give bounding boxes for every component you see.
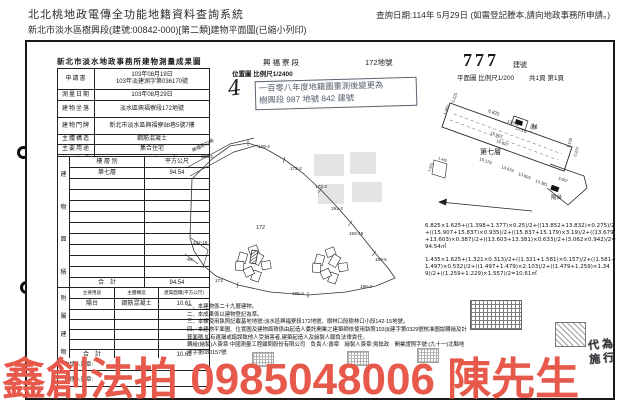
label: 0.377 [572, 145, 580, 157]
info-value-line: 鋼筋混凝土 [137, 136, 167, 143]
side-label-char: 附 [60, 293, 66, 302]
label: 13.679 [501, 164, 515, 173]
label: 第七層 [480, 147, 501, 156]
table-cell: 主體構造 [114, 288, 158, 298]
table-cell: 主要用途 [70, 288, 114, 298]
building-clusters [235, 245, 348, 284]
label: 173 [215, 278, 223, 283]
label: 13.381 [535, 178, 549, 187]
info-value: 新北市淡水區興福寮98巷5號7樓 [94, 118, 209, 134]
page: 北北桃地政電傳全功能地籍資料查詢系統 查詢日期:114年 5月29日 (如需登記… [0, 0, 640, 412]
table-cell [70, 212, 144, 222]
label: 15.179 [479, 156, 493, 165]
label: 173-3 [315, 184, 327, 189]
document-description: 新北市淡水區樹興段(建號:00842-000)[第二類]建物平面圖(已縮小列印) [28, 23, 307, 36]
info-row: 申請書103年08月19日103年淡建測字第036170號 [58, 69, 209, 89]
main-area-formula: 6.825×1.625+((1.398+1.377)×0.25)/2+((13.… [425, 223, 617, 252]
info-label: 主體構造 [58, 135, 94, 144]
location-map: 興福寮22巷186-4189-4173-2173-3191-3193-15142… [185, 137, 420, 307]
label: 梯 [532, 123, 538, 131]
survey-document: 新北市淡水地政事務所建物測量成果圖 興福寮段 172地號 777 建號 平面圖 … [25, 40, 615, 400]
label: 172 [256, 225, 265, 231]
building-footprint [312, 263, 321, 273]
table-cell: 第七層 [70, 168, 144, 178]
label: 142-16 [193, 240, 208, 245]
info-row: 建物門牌新北市淡水區興福寮98巷5號7樓 [58, 117, 209, 134]
label: 15.837 [496, 138, 510, 147]
table-cell [114, 310, 158, 319]
floor-area-side-label: 建物面積 [58, 157, 70, 288]
table-cell [114, 320, 158, 329]
info-value-line: 集合住宅 [140, 146, 164, 153]
table-cell: 陽台 [70, 299, 114, 309]
label: -94 [186, 257, 193, 262]
info-row: 測量日期103年08月29日 [58, 89, 209, 100]
label: 193-15 [349, 231, 364, 236]
table-cell: 樓 層 別 [70, 157, 144, 167]
label: 191-3 [331, 206, 343, 211]
info-value: 淡水區興福寮段172地號 [94, 101, 209, 117]
label: 189-4 [258, 144, 270, 149]
table-cell [70, 190, 144, 200]
building-footprint [235, 261, 244, 271]
label: 興福寮22巷 [191, 137, 215, 154]
balcony-detail [432, 160, 447, 178]
label: 13.603 [518, 171, 532, 180]
building-footprint [261, 260, 271, 269]
label: 173-2 [290, 166, 302, 171]
annex-area-formula: 1.435×1.625+(1.321×0.313)/2+((1.321+1.58… [425, 257, 617, 278]
plan-scale-label: 平面圖 比例尺1/200 [457, 72, 514, 82]
table-cell [70, 267, 144, 277]
side-label-char: 建 [60, 329, 66, 338]
location-map-label: 位置圖 比例尺1/2400 [232, 68, 293, 78]
land-number: 172地號 [365, 57, 393, 68]
table-cell: 鋼筋混凝土 [114, 299, 158, 309]
label: 185-4 [292, 291, 304, 296]
auction-watermark: 鑫創法拍 0985048006 陳先生 [2, 356, 640, 404]
label: 3.062 [558, 176, 568, 183]
label: 0.225 [450, 91, 458, 103]
note-line: 一、本建物係二十九層建物。 [187, 304, 467, 312]
faint-watermark-blocks [314, 152, 382, 204]
table-cell [70, 179, 144, 189]
system-title: 北北桃地政電傳全功能地籍資料查詢系統 [28, 6, 244, 22]
side-label-char: 屬 [60, 311, 66, 320]
side-label-char: 面 [60, 234, 66, 243]
label: 1.105 [565, 136, 573, 148]
table-cell [70, 223, 144, 233]
label: 陽台 [551, 193, 563, 201]
surveyor-seal-icon [555, 322, 586, 347]
info-value: 103年08月29日 [94, 90, 209, 100]
table-cell [70, 320, 114, 329]
label: 189-5 [375, 257, 387, 262]
form-title: 新北市淡水地政事務所建物測量成果圖 [57, 56, 202, 67]
info-label: 建物坐落 [58, 101, 94, 117]
note-line: 三、本棟使用執照記載基地地號:淡水區興福寮段172地號、樹林口段樹林口小段142… [187, 319, 467, 327]
info-label: 測量日期 [58, 90, 94, 100]
note-line: 四、本建物平面圖、位置圖及建物面積係由起造人委託開業之建築師依使用執照103淡建… [187, 327, 467, 342]
info-label: 主要用途 [58, 145, 94, 154]
section-name: 興福寮段 [263, 57, 301, 68]
handwritten-mark: 4 [226, 75, 243, 101]
leader-arrow [440, 202, 532, 211]
label: 1.435 [438, 156, 448, 163]
label: 13.832 [515, 125, 529, 134]
table-cell [70, 256, 144, 266]
info-row: 建物坐落淡水區興福寮段172地號 [58, 100, 209, 117]
area-formulas: 6.825×1.625+((1.398+1.377)×0.25)/2+((13.… [425, 223, 617, 283]
building-footprint [338, 262, 348, 271]
info-label: 建物門牌 [58, 118, 94, 134]
leader-arrowhead [438, 199, 447, 206]
label: 186-4 [201, 154, 213, 159]
info-value-line: 103年淡建測字第036170號 [116, 79, 188, 86]
info-label: 申請書 [58, 69, 94, 89]
company-seal-icon [470, 300, 522, 330]
side-label-char: 建 [60, 169, 66, 178]
info-value-line: 新北市淡水區興福寮98巷5號7樓 [109, 123, 194, 130]
label: 196-3 [360, 284, 372, 289]
label: 6.825 [488, 108, 501, 117]
table-cell [70, 340, 114, 349]
side-label-char: 積 [60, 267, 66, 276]
table-cell [70, 310, 114, 319]
floor-plan: 6.8250.2251.68313.85213.83215.90715.8371… [427, 87, 612, 217]
table-cell [70, 330, 114, 339]
balcony-mark [550, 185, 559, 192]
table-cell [114, 340, 158, 349]
annex-side-label: 附屬建物 [58, 288, 70, 360]
page-info: 共1頁 第1頁 [529, 72, 564, 82]
table-cell [70, 245, 144, 255]
info-value: 103年08月19日103年淡建測字第036170號 [94, 69, 209, 89]
building-number-unit: 建號 [513, 60, 527, 70]
side-label-char: 物 [60, 202, 66, 211]
floor-outline [442, 103, 572, 171]
plan-dimension-labels: 6.8250.2251.68313.85213.83215.90715.8371… [427, 91, 580, 201]
query-date: 查詢日期:114年 5月29日 (如需登記謄本,請向地政事務所申請。) [376, 9, 610, 21]
table-cell [114, 330, 158, 339]
info-value-line: 103年08月19日 [131, 72, 172, 79]
table-cell [70, 201, 144, 211]
info-value-line: 103年08月29日 [131, 92, 172, 99]
info-value-line: 淡水區興福寮段172地號 [120, 106, 184, 113]
table-cell [70, 234, 144, 244]
resurvey-stamp: 一百零八年度地籍圖重測後變更為 樹興段 987 地號 842 建號 [255, 77, 418, 111]
building-number: 777 [463, 50, 499, 71]
